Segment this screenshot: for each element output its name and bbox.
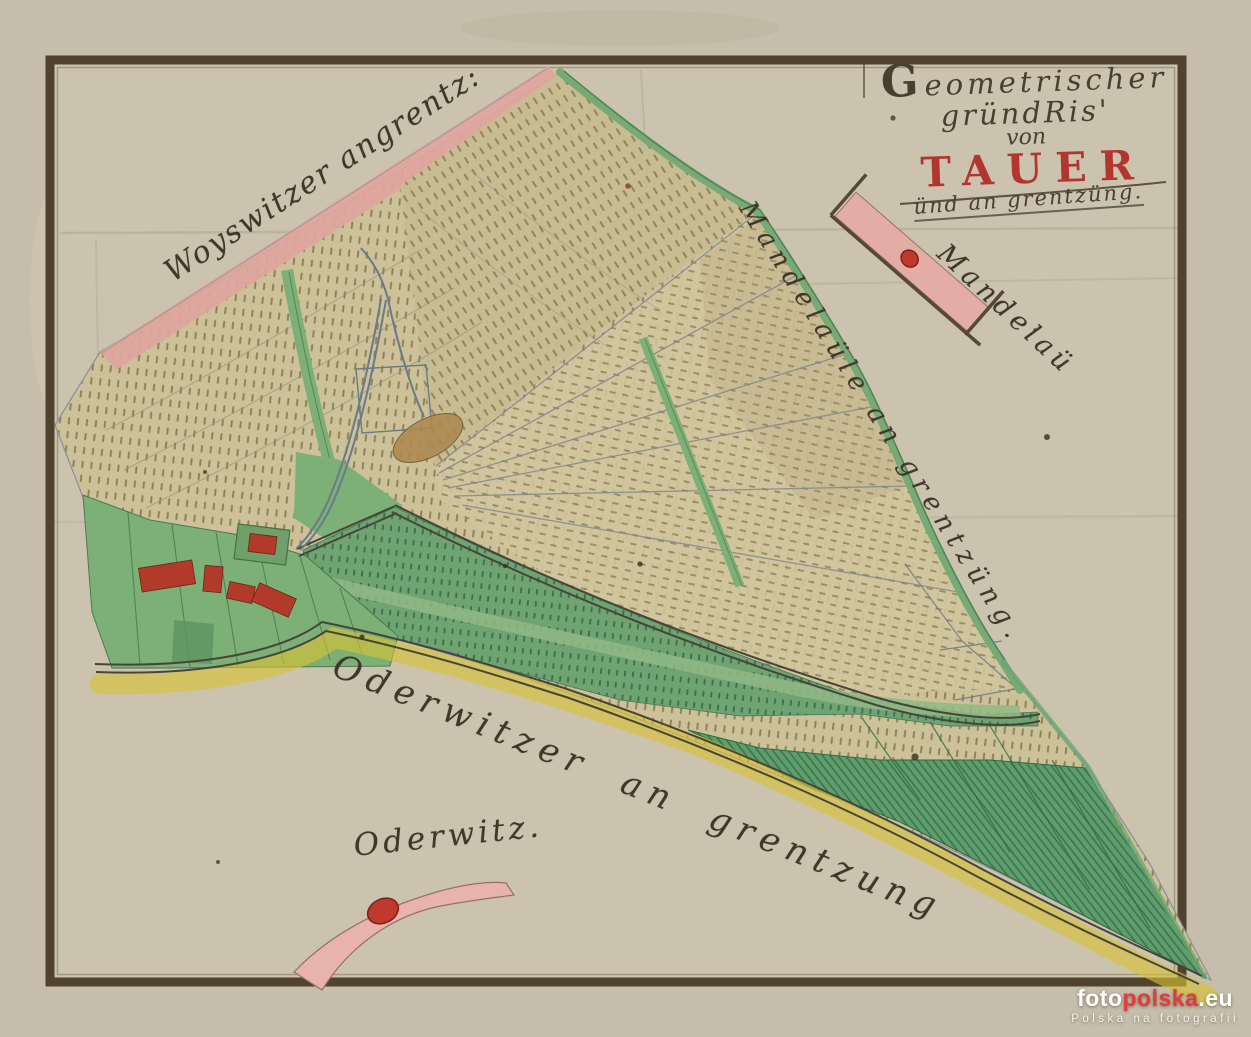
building [203, 565, 223, 592]
village-dark-patch [172, 620, 214, 664]
map-drawing [0, 0, 1251, 1037]
historical-map-scan: Woyswitzer angrentz: Mandelaüle an grent… [0, 0, 1251, 1037]
farm-house [248, 533, 277, 554]
